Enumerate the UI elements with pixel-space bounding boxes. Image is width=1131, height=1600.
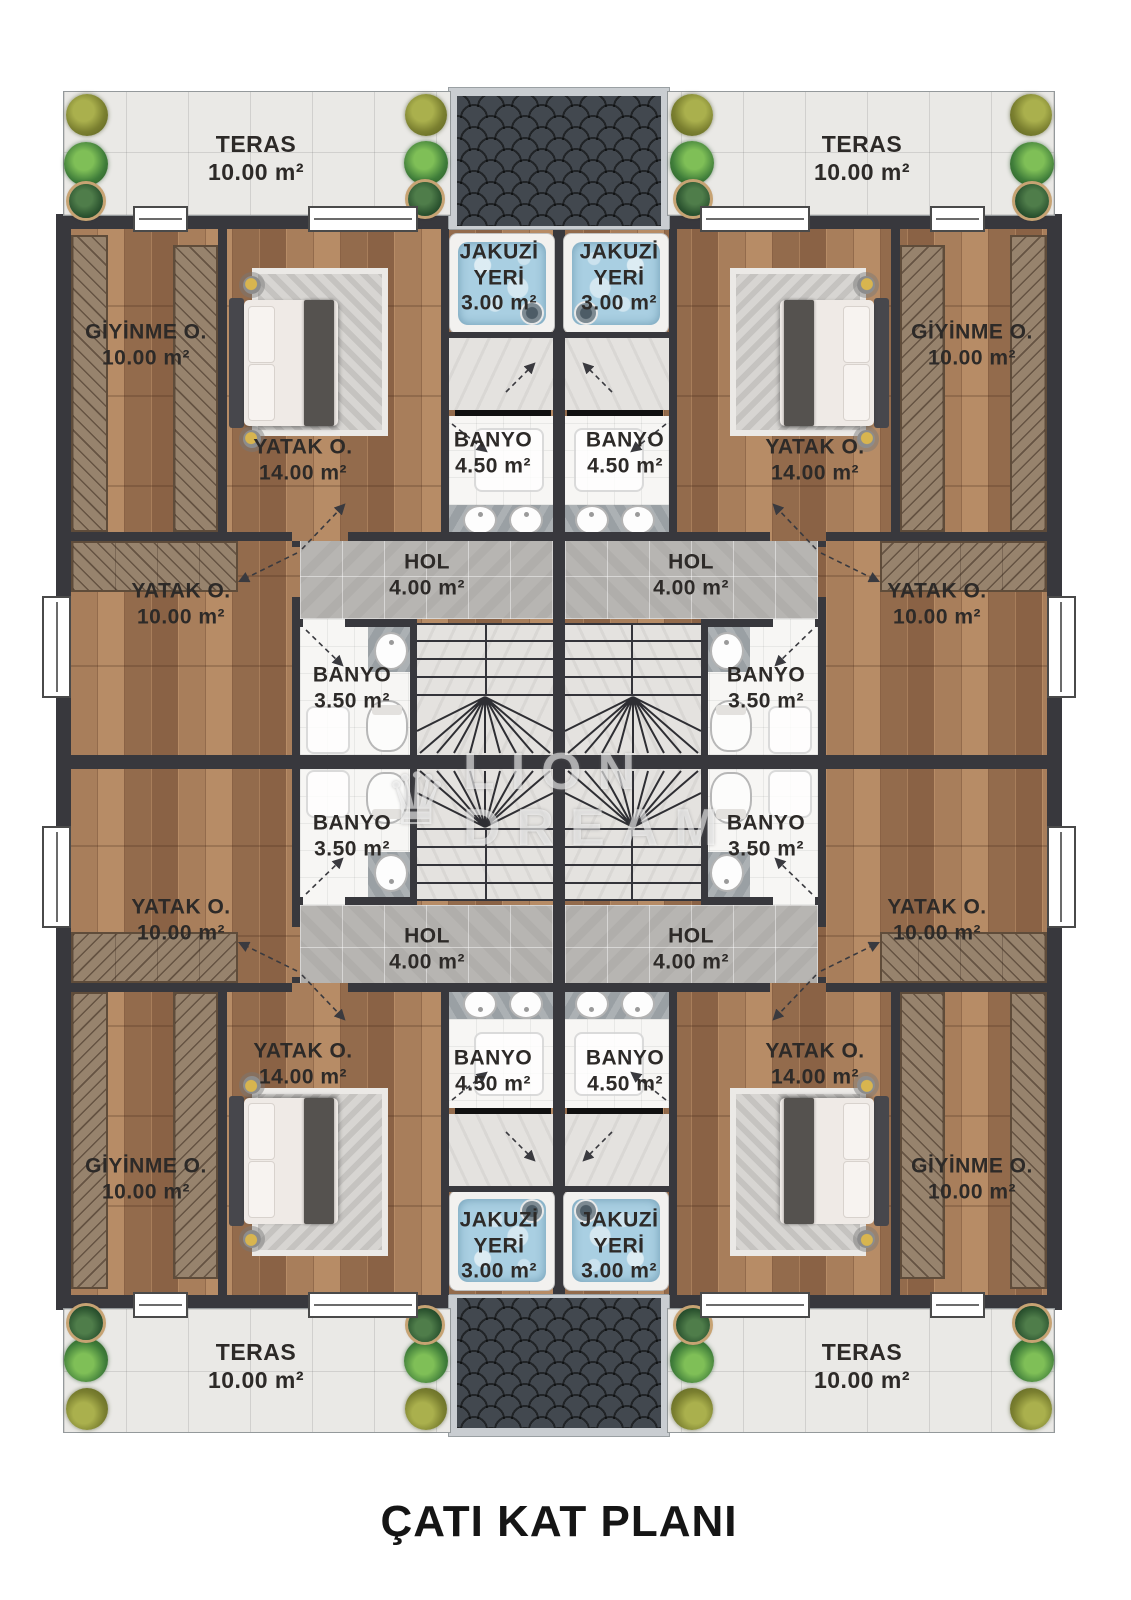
room-name: HOL: [389, 923, 465, 949]
room-name: JAKUZİ: [460, 1208, 539, 1234]
room-name: BANYO: [454, 1045, 532, 1071]
room-name: BANYO: [727, 810, 805, 836]
room-label-giyinme: GİYİNME O. 10.00 m²: [85, 1153, 207, 1204]
room-area: 3.50 m²: [727, 688, 805, 714]
room-label-hol: HOL 4.00 m²: [653, 923, 729, 974]
room-name: HOL: [653, 923, 729, 949]
room-name: TERAS: [814, 130, 910, 158]
room-name: YERİ: [460, 1233, 539, 1259]
room-label-yatak-buyuk: YATAK O. 14.00 m²: [253, 434, 352, 485]
room-name: TERAS: [814, 1338, 910, 1366]
plant-icon: [1010, 94, 1052, 136]
inner-wall: [818, 541, 826, 547]
room-label-yatak-kucuk: YATAK O. 10.00 m²: [131, 578, 230, 629]
room-area: 14.00 m²: [253, 460, 352, 486]
plant-icon: [670, 141, 714, 185]
room-area: 4.00 m²: [653, 949, 729, 975]
sink: [621, 505, 655, 535]
room-area: 10.00 m²: [887, 920, 986, 946]
inner-wall: [565, 532, 770, 541]
room-label-banyo-buyuk: BANYO 4.50 m²: [454, 1045, 532, 1096]
bed-headboard: [874, 298, 889, 428]
window: [930, 206, 985, 232]
room-label-teras: TERAS 10.00 m²: [814, 130, 910, 186]
inner-wall: [701, 619, 773, 627]
room-name: TERAS: [208, 130, 304, 158]
room-area: 14.00 m²: [765, 460, 864, 486]
inner-wall: [826, 532, 1047, 541]
room-label-banyo-buyuk: BANYO 4.50 m²: [586, 1045, 664, 1096]
room-label-jakuzi: JAKUZİ YERİ 3.00 m²: [460, 1208, 539, 1285]
room-name: YATAK O.: [131, 894, 230, 920]
room-area: 14.00 m²: [253, 1064, 352, 1090]
room-name: YATAK O.: [253, 1038, 352, 1064]
room-label-giyinme: GİYİNME O. 10.00 m²: [85, 319, 207, 370]
room-area: 10.00 m²: [208, 1366, 304, 1394]
room-name: GİYİNME O.: [85, 319, 207, 345]
inner-wall: [891, 229, 900, 532]
room-label-jakuzi: JAKUZİ YERİ 3.00 m²: [460, 240, 539, 317]
room-label-giyinme: GİYİNME O. 10.00 m²: [911, 319, 1033, 370]
room-label-yatak-buyuk: YATAK O. 14.00 m²: [765, 434, 864, 485]
window: [1047, 596, 1076, 698]
stair-landing: [565, 338, 669, 410]
room-label-banyo-kucuk: BANYO 3.50 m²: [313, 810, 391, 861]
room-label-yatak-buyuk: YATAK O. 14.00 m²: [253, 1038, 352, 1089]
stairwell: [565, 623, 701, 755]
bed-pillow: [843, 306, 870, 363]
room-name: BANYO: [727, 662, 805, 688]
room-label-hol: HOL 4.00 m²: [653, 549, 729, 600]
room-area: 4.00 m²: [389, 949, 465, 975]
room-name: YATAK O.: [887, 894, 986, 920]
room-name: YERİ: [580, 1233, 659, 1259]
room-name: BANYO: [586, 427, 664, 453]
room-label-jakuzi: JAKUZİ YERİ 3.00 m²: [580, 240, 659, 317]
room-label-banyo-buyuk: BANYO 4.50 m²: [586, 427, 664, 478]
wardrobe: [900, 245, 945, 532]
room-label-hol: HOL 4.00 m²: [389, 549, 465, 600]
bed-pillow: [843, 364, 870, 421]
room-area: 3.00 m²: [460, 291, 539, 317]
room-label-yatak-kucuk: YATAK O. 10.00 m²: [887, 578, 986, 629]
room-label-teras: TERAS 10.00 m²: [208, 130, 304, 186]
room-name: BANYO: [313, 810, 391, 836]
plan-quadrant: [0, 0, 1118, 1600]
room-area: 10.00 m²: [131, 920, 230, 946]
room-label-teras: TERAS 10.00 m²: [208, 1338, 304, 1394]
room-label-jakuzi: JAKUZİ YERİ 3.00 m²: [580, 1208, 659, 1285]
room-area: 4.00 m²: [653, 575, 729, 601]
wardrobe: [1010, 235, 1047, 532]
room-area: 10.00 m²: [85, 345, 207, 371]
room-name: JAKUZİ: [460, 240, 539, 266]
room-label-yatak-buyuk: YATAK O. 14.00 m²: [765, 1038, 864, 1089]
room-name: YATAK O.: [887, 578, 986, 604]
room-name: HOL: [653, 549, 729, 575]
sink: [575, 505, 609, 535]
page-title: ÇATI KAT PLANI: [381, 1497, 738, 1547]
room-name: YERİ: [460, 265, 539, 291]
plant-icon: [1010, 142, 1054, 186]
nightstand-lamp: [857, 276, 875, 294]
room-area: 4.50 m²: [586, 453, 664, 479]
room-name: BANYO: [313, 662, 391, 688]
inner-wall: [669, 229, 677, 540]
room-label-banyo-kucuk: BANYO 3.50 m²: [313, 662, 391, 713]
room-label-banyo-buyuk: BANYO 4.50 m²: [454, 427, 532, 478]
inner-wall: [701, 619, 708, 755]
room-name: YATAK O.: [765, 434, 864, 460]
room-name: BANYO: [454, 427, 532, 453]
room-area: 4.50 m²: [454, 453, 532, 479]
room-area: 10.00 m²: [887, 604, 986, 630]
inner-wall: [815, 619, 826, 627]
room-area: 10.00 m²: [911, 1179, 1033, 1205]
room-area: 10.00 m²: [131, 604, 230, 630]
room-name: YATAK O.: [253, 434, 352, 460]
plant-icon: [1015, 184, 1049, 218]
room-label-yatak-kucuk: YATAK O. 10.00 m²: [887, 894, 986, 945]
room-area: 10.00 m²: [814, 158, 910, 186]
room-area: 14.00 m²: [765, 1064, 864, 1090]
terrace-door: [700, 206, 810, 232]
room-name: JAKUZİ: [580, 1208, 659, 1234]
room-area: 4.50 m²: [454, 1071, 532, 1097]
room-area: 3.50 m²: [313, 836, 391, 862]
room-area: 3.00 m²: [580, 1259, 659, 1285]
room-label-teras: TERAS 10.00 m²: [814, 1338, 910, 1394]
floor-plan-page: TERAS 10.00 m² GİYİNME O. 10.00 m² YATAK…: [0, 0, 1131, 1600]
room-area: 3.50 m²: [313, 688, 391, 714]
room-area: 10.00 m²: [85, 1179, 207, 1205]
bed-runner: [784, 300, 814, 426]
room-area: 3.00 m²: [580, 291, 659, 317]
room-area: 10.00 m²: [208, 158, 304, 186]
plant-icon: [671, 94, 713, 136]
room-name: GİYİNME O.: [85, 1153, 207, 1179]
room-label-banyo-kucuk: BANYO 3.50 m²: [727, 810, 805, 861]
room-area: 4.00 m²: [389, 575, 465, 601]
room-area: 3.00 m²: [460, 1259, 539, 1285]
room-area: 4.50 m²: [586, 1071, 664, 1097]
stairs-and-arrows: [0, 0, 1118, 1600]
room-name: TERAS: [208, 1338, 304, 1366]
room-area: 3.50 m²: [727, 836, 805, 862]
room-name: GİYİNME O.: [911, 1153, 1033, 1179]
room-name: YATAK O.: [765, 1038, 864, 1064]
room-name: BANYO: [586, 1045, 664, 1071]
room-name: YERİ: [580, 265, 659, 291]
room-name: JAKUZİ: [580, 240, 659, 266]
room-name: GİYİNME O.: [911, 319, 1033, 345]
room-label-yatak-kucuk: YATAK O. 10.00 m²: [131, 894, 230, 945]
room-label-banyo-kucuk: BANYO 3.50 m²: [727, 662, 805, 713]
room-label-giyinme: GİYİNME O. 10.00 m²: [911, 1153, 1033, 1204]
room-label-hol: HOL 4.00 m²: [389, 923, 465, 974]
room-name: HOL: [389, 549, 465, 575]
room-area: 10.00 m²: [911, 345, 1033, 371]
room-name: YATAK O.: [131, 578, 230, 604]
room-area: 10.00 m²: [814, 1366, 910, 1394]
